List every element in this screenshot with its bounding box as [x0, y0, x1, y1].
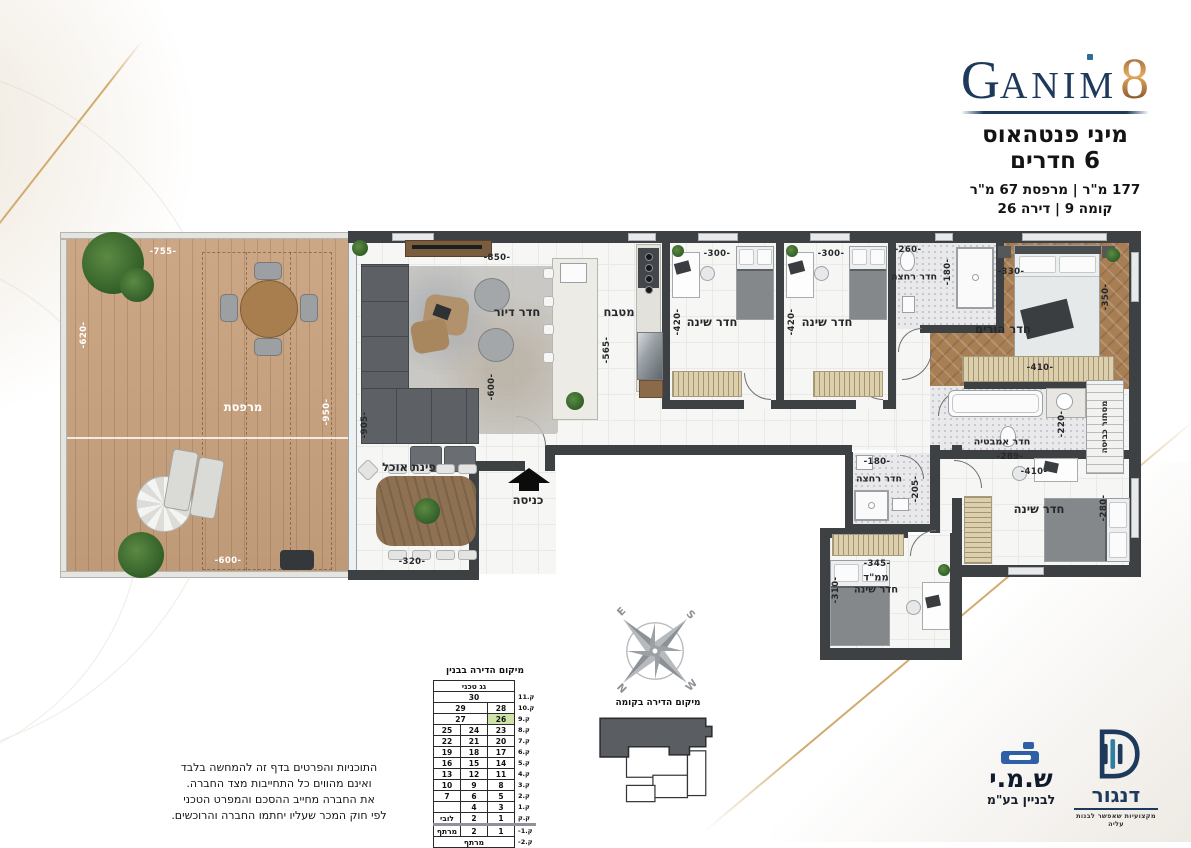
balcony-parapet-bottom: [60, 571, 350, 578]
window-kitchen: [628, 233, 656, 241]
dim-living-top: -850-: [484, 253, 511, 263]
dim-bath2-w: -180-: [864, 457, 891, 467]
dangor-tagline: מקצועיות שאפשר לבנות עליה: [1068, 812, 1164, 828]
island-sink: [560, 263, 587, 283]
wall-dining-bottom: [348, 570, 479, 580]
location-table-widget: מיקום הדירה בבנין גג טכני3011.ק292810.ק2…: [433, 666, 561, 848]
blanket: [737, 269, 773, 319]
bed-bedroom2: [849, 246, 887, 320]
master-bed: [1014, 245, 1100, 358]
logo-underline: [961, 111, 1149, 114]
balcony-chair-north: [254, 262, 282, 280]
wardrobe-bedroom1: [672, 371, 742, 397]
svg-text:W: W: [683, 677, 700, 694]
label-living: חדר דיור: [494, 305, 541, 319]
label-entrance: כניסה: [513, 493, 544, 507]
wardrobe-mamad: [832, 534, 904, 556]
window-master-right: [1131, 252, 1139, 302]
bed-bedroom1: [736, 246, 774, 320]
dim-master-h: -350-: [1101, 284, 1111, 311]
level-slot: [1009, 755, 1031, 760]
location-table-body: גג טכני3011.ק292810.ק27269.ק2524238.ק222…: [434, 681, 537, 848]
wall-mamad-bottom: [820, 648, 962, 660]
bathtub: [948, 390, 1043, 417]
dim-master-bath-w: -289-: [997, 452, 1024, 462]
compass-rose-icon: E S N W: [608, 604, 702, 698]
label-bath2: חדר רחצה: [856, 474, 902, 485]
location-table-title: מיקום הדירה בבנין: [433, 666, 537, 676]
balcony-chair-south: [254, 338, 282, 356]
pillow: [757, 249, 772, 265]
door-gap-bedroom1: [744, 400, 771, 409]
wall-bedroom2-right: [888, 243, 896, 408]
pillow: [1109, 502, 1127, 528]
entrance-arrow-stem: [519, 483, 539, 491]
window-bedroom3-right: [1131, 478, 1139, 538]
dim-living-right: -905-: [360, 412, 370, 439]
wall-bath2-bottom: [845, 524, 938, 532]
label-bedroom1: חדר שינה: [687, 315, 738, 329]
svg-text:N: N: [614, 681, 629, 696]
window-bath-top: [935, 233, 953, 241]
dim-mamad-w: -345-: [864, 559, 891, 569]
dining-chair-7: [436, 550, 455, 560]
floor-diagram-title: מיקום הדירה בקומה: [596, 698, 720, 708]
label-bedroom2: חדר שינה: [802, 315, 853, 329]
dim-living-mid: -600-: [487, 374, 497, 401]
svg-text:E: E: [615, 605, 628, 618]
shower-drain: [972, 274, 979, 281]
plant-bedroom2: [786, 245, 798, 257]
shmi-logo: ש.מ.י לבניין בע"מ: [975, 742, 1067, 807]
disclaimer-line: לפי חוק המכר שעליו יחתמו החברה והרוכשים.: [148, 808, 410, 824]
deck-joint-line: [62, 437, 348, 439]
dim-bedroom2-w: -300-: [818, 249, 845, 259]
disclaimer-line: את החברה מחייב ההסכם והמפרט הטכני: [148, 792, 410, 808]
vanity-basin: [1056, 393, 1073, 410]
blanket: [850, 269, 886, 319]
sink-bath2: [892, 498, 909, 511]
rooms-count-title: 6 חדרים: [930, 148, 1180, 174]
coffee-table-2: [409, 317, 450, 355]
logo-letter-g: G: [961, 50, 1000, 110]
sofa-horizontal: [361, 388, 479, 444]
dim-bedroom1-h: -420-: [673, 309, 683, 336]
balcony-chair-east: [300, 294, 318, 322]
label-laundry: מסתור כביסה: [1100, 401, 1110, 454]
wall-bedroom1-left: [662, 243, 670, 408]
burner-icon: [645, 275, 653, 283]
door-arc-mamad: [910, 530, 936, 556]
dining-chair-3: [436, 464, 455, 474]
pillow: [852, 249, 867, 265]
dim-balcony-right: -950-: [322, 399, 332, 426]
dining-plant: [414, 498, 440, 524]
living-glass-wall: [348, 241, 357, 571]
dim-balcony-top: -755-: [150, 247, 177, 257]
kitchen-cabinet: [639, 380, 663, 398]
entrance-arrow-icon: [508, 468, 550, 483]
desk-bedroom2: [786, 252, 814, 298]
desk-bedroom1: [672, 252, 700, 298]
dim-bath2-h: -205-: [911, 476, 921, 503]
dining-chair-8: [458, 550, 477, 560]
dim-kitchen: -565-: [602, 337, 612, 364]
label-dining: פינת אוכל: [382, 460, 436, 474]
floor-diagram: [596, 712, 720, 810]
nightstand-left: [998, 246, 1011, 258]
dining-chair-4: [458, 464, 477, 474]
balcony-round-table: [240, 280, 298, 338]
svg-text:S: S: [684, 608, 698, 622]
label-balcony: מרפסת: [224, 400, 262, 414]
apartment-type-title: מיני פנטהאוס: [930, 122, 1180, 148]
pillow: [870, 249, 885, 265]
floor-apartment-line: קומה 9 | דירה 26: [930, 201, 1180, 217]
disclaimer-line: התוכניות והפרטים בדף זה להמחשה בלבד: [148, 760, 410, 776]
dim-bedroom1-w: -300-: [704, 249, 731, 259]
dim-bath-top-w: -260-: [895, 245, 922, 255]
dim-bath-top-h: -180-: [943, 259, 953, 286]
kitchen-stool-3: [543, 324, 554, 335]
dangor-d-icon: [1091, 728, 1141, 780]
balcony-plant-large-2: [120, 268, 154, 302]
label-master: חדר הורים: [975, 322, 1031, 336]
dim-master-wardrobe: -410-: [1027, 363, 1054, 373]
burner-icon: [645, 253, 653, 261]
plant-mamad: [938, 564, 950, 576]
window-bedroom2: [810, 233, 850, 241]
dim-bedroom3-w: -410-: [1021, 467, 1048, 477]
label-kitchen: מטבח: [603, 305, 634, 319]
dim-balcony-left: -620-: [79, 322, 89, 349]
dim-balcony-bottom: -600-: [215, 556, 242, 566]
wall-bedroom3-bottom: [952, 565, 1141, 577]
wardrobe-bedroom2: [813, 371, 883, 397]
dim-mamad-h: -310-: [831, 577, 841, 604]
shmi-name: ש.מ.י: [975, 766, 1067, 792]
chair-mamad: [906, 600, 921, 615]
armchair-2: [478, 328, 514, 362]
disclaimer-text: התוכניות והפרטים בדף זה להמחשה בלבד ואינ…: [148, 760, 410, 824]
burner-icon: [645, 264, 653, 272]
chair-bedroom1: [700, 266, 715, 281]
window-master: [1022, 233, 1107, 241]
door-gap-bedroom2: [856, 400, 883, 409]
location-table: גג טכני3011.ק292810.ק27269.ק2524238.ק222…: [433, 680, 536, 848]
dim-master-bath-h: -220-: [1057, 411, 1067, 438]
balcony-parapet-left: [60, 239, 67, 578]
kitchen-stool-2: [543, 296, 554, 307]
fridge: [637, 332, 663, 380]
area-spec-line: 177 מ"ר | מרפסת 67 מ"ר: [930, 182, 1180, 198]
dangor-logo: דנגור מקצועיות שאפשר לבנות עליה: [1068, 728, 1164, 828]
label-master-bath: חדר אמבטיה: [974, 437, 1031, 448]
kitchen-stool-4: [543, 352, 554, 363]
plant-bedroom1: [672, 245, 684, 257]
logo-number: 8: [1120, 46, 1149, 111]
balcony-grill: [280, 550, 314, 570]
dim-dining: -320-: [399, 557, 426, 567]
burner-icon: [645, 286, 653, 294]
dangor-divider: [1074, 808, 1158, 810]
kitchen-plant: [566, 392, 584, 410]
dim-bedroom2-h: -420-: [787, 309, 797, 336]
balcony-plant-small: [118, 532, 164, 578]
wall-bath2-left: [845, 452, 853, 530]
kitchen-stool-1: [543, 268, 554, 279]
window-bedroom3-bottom: [1008, 567, 1044, 575]
headboard: [1015, 246, 1101, 254]
bathtub-inner: [952, 394, 1039, 413]
pillow: [1059, 256, 1096, 273]
wall-bedrooms-separator: [776, 243, 784, 408]
logo-text: ANIM: [1000, 65, 1117, 107]
sink-top-bath: [902, 296, 915, 313]
living-plant: [352, 240, 368, 256]
logo-i-dot-icon: [1087, 54, 1093, 60]
dim-master-w: -330-: [998, 267, 1025, 277]
wall-mamad-left: [820, 528, 830, 660]
master-plant: [1106, 248, 1120, 262]
stove: [638, 248, 659, 288]
label-bath-top: חדר רחצה: [891, 272, 937, 283]
dim-bedroom3-h: -280-: [1099, 495, 1109, 522]
level-tool-icon: [1001, 742, 1041, 764]
header: GANIM8 מיני פנטהאוס 6 חדרים 177 מ"ר | מר…: [930, 50, 1180, 217]
shmi-subtitle: לבניין בע"מ: [975, 792, 1067, 807]
chair-bedroom2: [814, 266, 829, 281]
pillow: [1109, 532, 1127, 558]
label-mamad-line2: חדר שינה: [854, 585, 898, 596]
ganim8-logo: GANIM8: [961, 50, 1149, 114]
balcony-chair-west: [220, 294, 238, 322]
label-mamad-line1: ממ"ד: [863, 573, 889, 584]
wall-bedroom3-left: [952, 498, 962, 568]
wall-corridor-bottom: [552, 445, 852, 455]
tv-screen: [412, 245, 482, 249]
pillow: [739, 249, 754, 265]
level-nub: [1023, 742, 1034, 749]
dangor-name: דנגור: [1068, 784, 1164, 806]
disclaimer-line: ואינם מהווים כל התחייבות מצד החברה.: [148, 776, 410, 792]
shower2-drain: [868, 502, 875, 509]
window-bedroom1: [698, 233, 738, 241]
wardrobe-bedroom3: [964, 496, 992, 564]
label-bedroom3: חדר שינה: [1014, 502, 1065, 516]
